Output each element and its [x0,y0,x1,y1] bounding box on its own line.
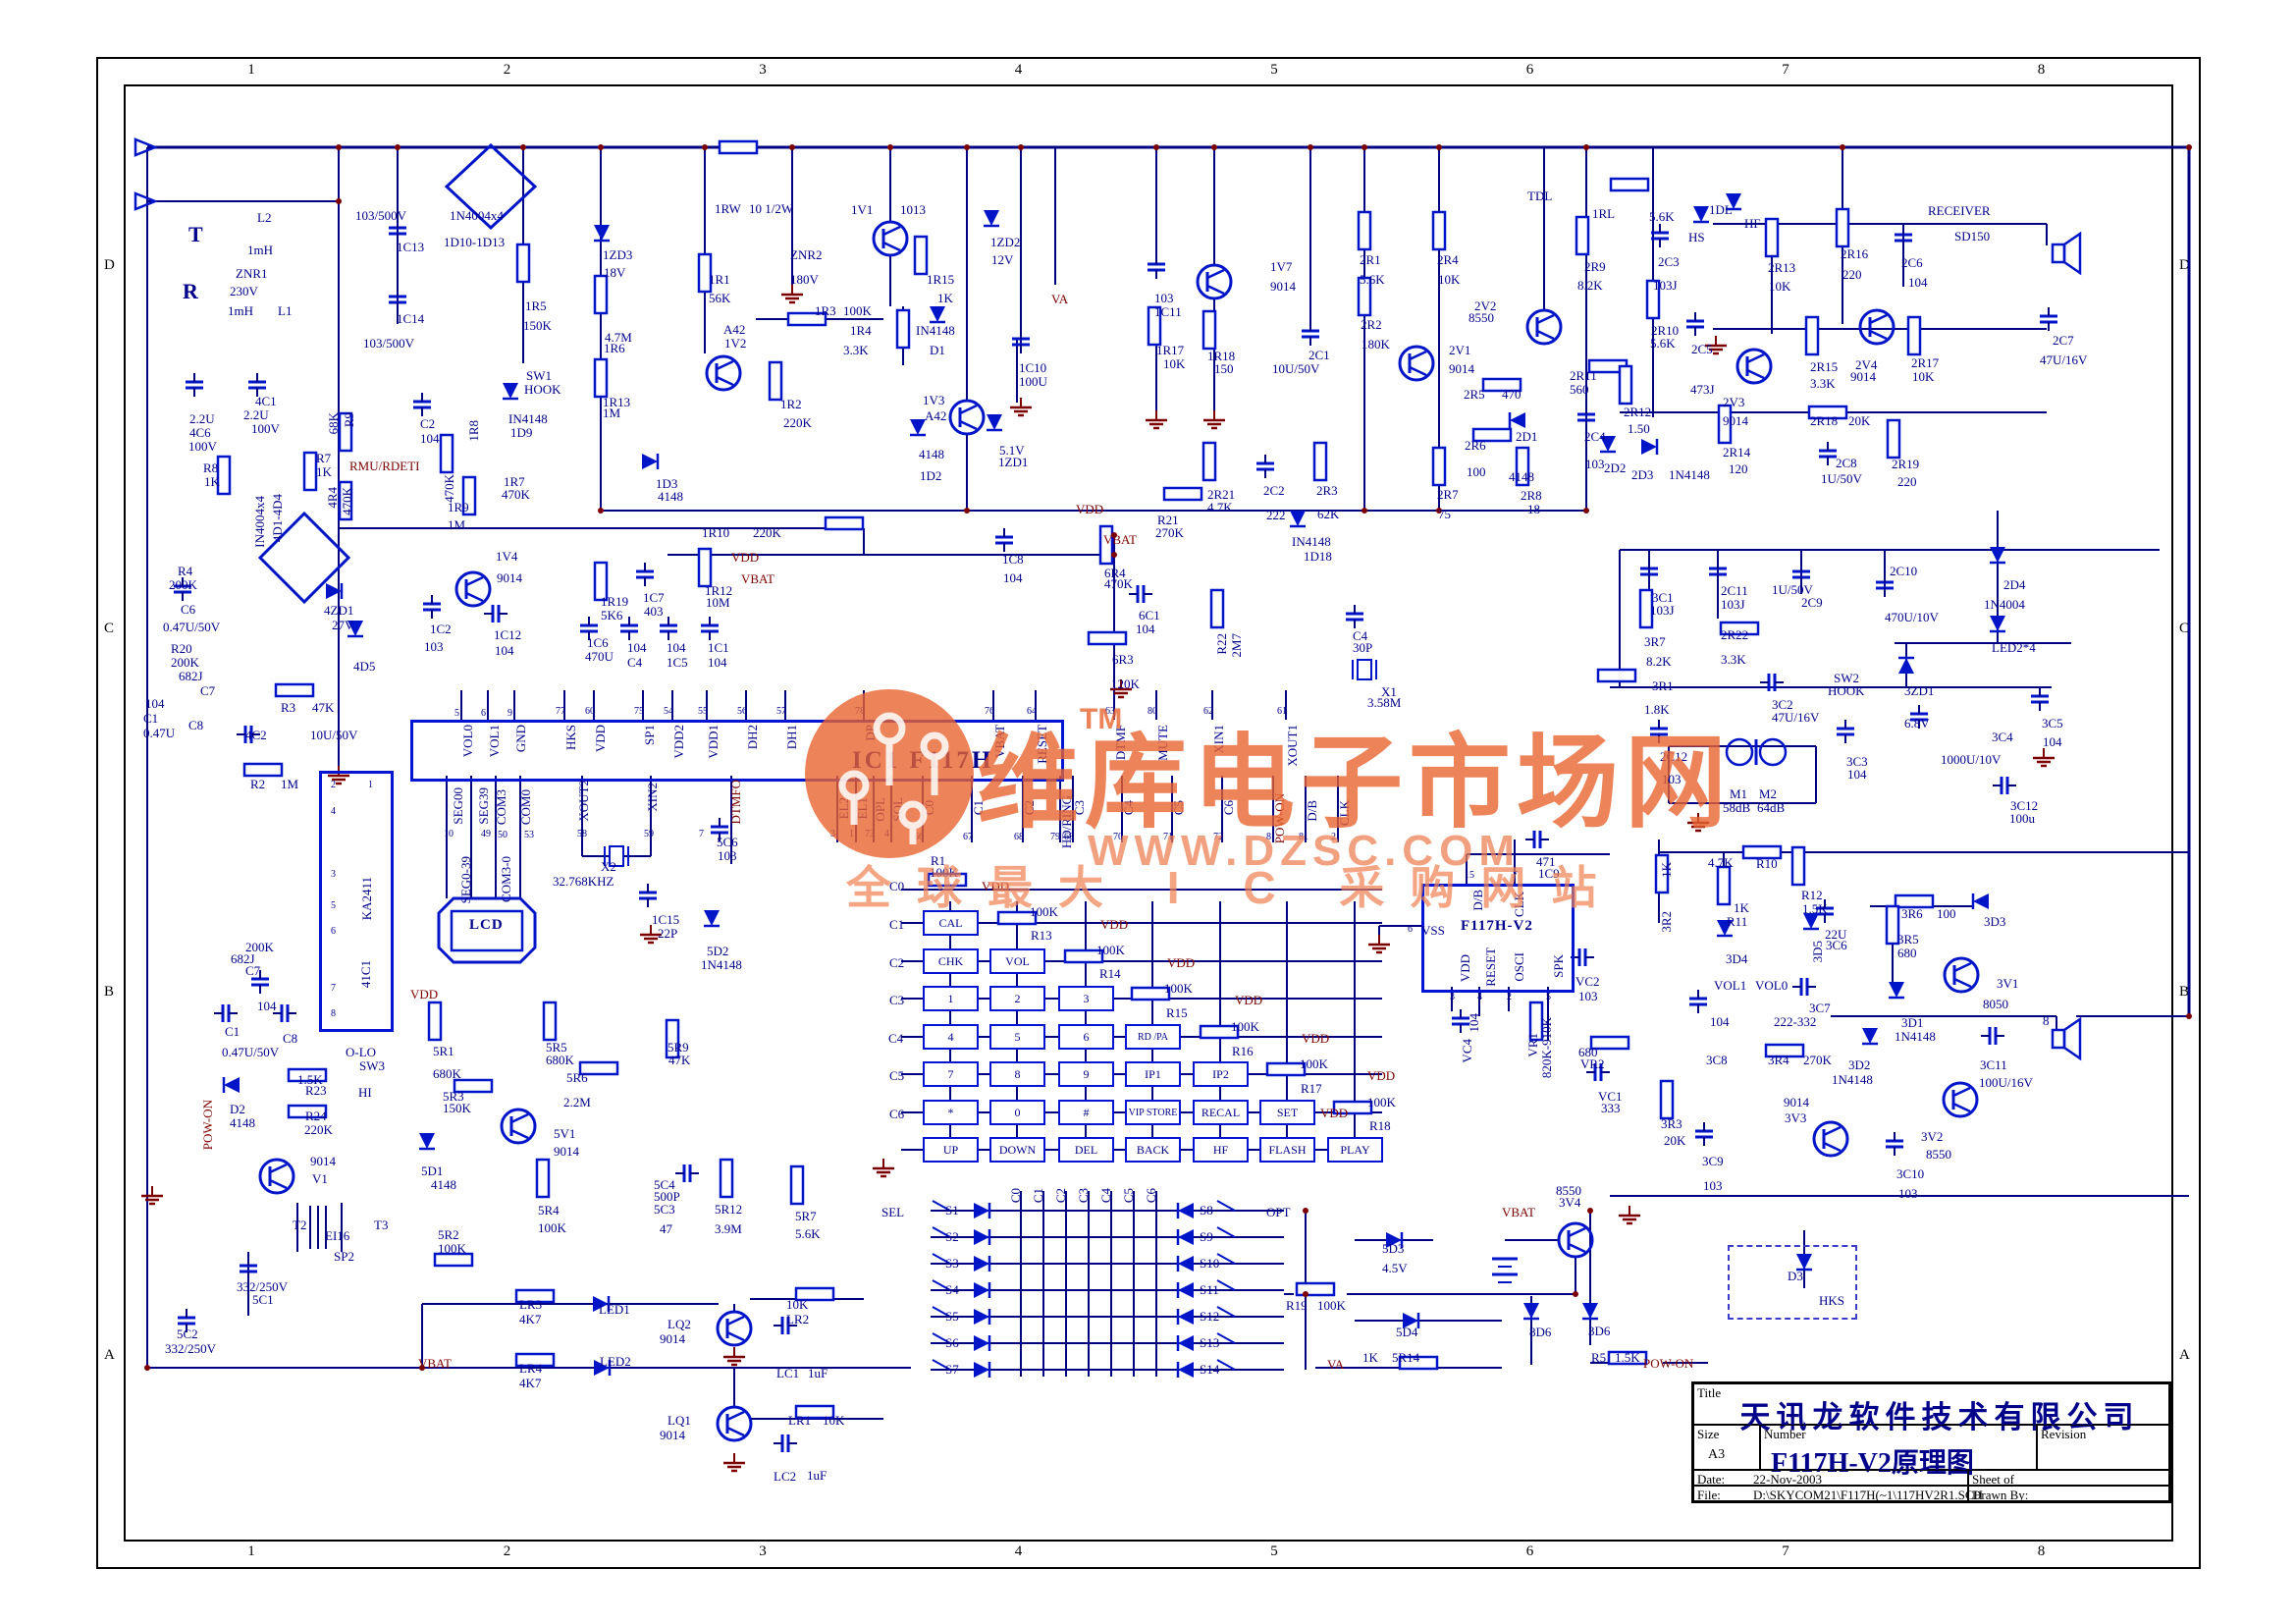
title-label: Title [1697,1385,1721,1401]
sheet-cell: Sheet of [1968,1470,2169,1486]
number-label: Number [1764,1427,1806,1442]
number-cell: Number F117H-V2原理图 [1760,1425,2037,1470]
file-cell: File: D:\SKYCOM21\F117H(~1\117HV2R1.SCH [1693,1486,1968,1501]
size-label: Size [1697,1427,1719,1442]
size-cell: Size A3 [1693,1425,1760,1470]
revision-cell: Revision [2037,1425,2169,1470]
f117h-v2-outline [1421,884,1575,993]
drawnby-cell: Drawn By: [1968,1486,2169,1501]
size-value: A3 [1708,1447,1725,1463]
schematic-sheet: 12345678 12345678 DCBA DCBA TRL21mHZNR12… [0,0,2296,1624]
revision-label: Revision [2041,1427,2086,1442]
title-block: Title 天讯龙软件技术有限公司 Size A3 Number F117H-V… [1691,1381,2171,1503]
title-cell: Title 天讯龙软件技术有限公司 [1693,1383,2169,1425]
ic1-f117h-outline [410,720,1064,782]
file-label: File: [1697,1488,1721,1503]
drawnby-label: Drawn By: [1972,1488,2028,1503]
date-cell: Date: 22-Nov-2003 [1693,1470,1968,1486]
ka2411-outline [319,771,394,1032]
file-value: D:\SKYCOM21\F117H(~1\117HV2R1.SCH [1753,1488,1983,1503]
hks-dashed-box [1728,1245,1857,1320]
